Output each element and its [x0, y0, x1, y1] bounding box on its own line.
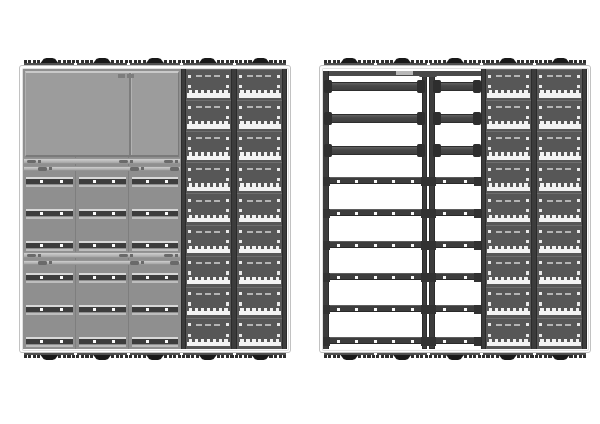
vent-comb-bar	[239, 93, 281, 97]
rail-bottom-edge	[79, 281, 126, 283]
module-screw	[277, 116, 280, 119]
foot-screw-pad	[63, 355, 66, 358]
cross-beam	[326, 146, 423, 155]
vent-comb-bar	[239, 280, 281, 284]
foot-screw-pad	[328, 355, 331, 358]
module-screw	[526, 137, 529, 140]
foot-screw-pad	[521, 60, 524, 63]
vent-comb-bar	[239, 342, 281, 346]
foot-screw-pad	[324, 60, 327, 63]
module-screw	[239, 302, 242, 305]
cabinet-seam-bar	[23, 166, 181, 172]
foot-screw-pad	[217, 60, 220, 63]
module-vent-dash	[247, 200, 253, 202]
module-screw	[539, 75, 542, 78]
foot-center-pad	[393, 58, 411, 64]
beam-coupler	[417, 80, 425, 93]
vent-comb-bar	[539, 342, 581, 346]
rail-coupler	[323, 305, 330, 314]
rail-screw-dot	[146, 180, 149, 183]
foot-screw-pad	[443, 355, 446, 358]
module-vent-dash	[547, 106, 553, 108]
module-screw	[577, 178, 580, 181]
assembly-right	[319, 55, 591, 363]
foot-screw-pad	[429, 60, 432, 63]
perforated-module	[486, 100, 531, 131]
module-vent-dash	[247, 75, 253, 77]
rail-screw-dot	[443, 308, 446, 311]
module-vent-dash	[547, 293, 553, 295]
mounting-rail	[79, 209, 126, 219]
rail-bottom-edge	[79, 185, 126, 187]
seam-clip	[164, 254, 173, 258]
panel-frame	[319, 65, 591, 353]
perforated-module	[186, 193, 231, 224]
seam-clip	[164, 160, 173, 164]
foot-screw-pad	[517, 60, 520, 63]
module-screw	[488, 147, 491, 150]
rail-screw-dot	[374, 244, 377, 247]
perforated-module	[237, 318, 282, 349]
rail-screw-dot	[60, 308, 63, 311]
foot-group-top-5	[536, 55, 586, 65]
foot-screw-pad	[138, 60, 141, 63]
seam-clip	[119, 254, 128, 258]
rail-coupler	[421, 337, 436, 346]
module-screw	[488, 106, 491, 109]
foot-screw-pad	[196, 60, 199, 63]
module-screw	[539, 137, 542, 140]
foot-screw-pad	[129, 355, 132, 358]
module-screw	[577, 137, 580, 140]
rail-screw-dot	[146, 340, 149, 343]
module-screw	[277, 106, 280, 109]
foot-screw-pad	[429, 355, 432, 358]
foot-screw-pad	[134, 60, 137, 63]
module-screw	[539, 292, 542, 295]
module-screw	[188, 240, 191, 243]
foot-screw-pad	[390, 60, 393, 63]
rail-screw-dot	[464, 276, 467, 279]
rail-bottom-edge	[132, 185, 179, 187]
module-screw	[226, 85, 229, 88]
mounting-rail	[132, 241, 179, 251]
module-vent-dash	[265, 262, 271, 264]
module-screw	[539, 261, 542, 264]
foot-screw-pad	[76, 60, 79, 63]
panel-content	[323, 69, 587, 349]
module-screw	[539, 85, 542, 88]
module-screw	[539, 168, 542, 171]
foot-screw-pad	[583, 60, 586, 63]
module-vent-dash	[547, 168, 553, 170]
foot-screw-pad	[478, 60, 481, 63]
foot-group-bottom-5	[236, 353, 286, 363]
foot-screw-pad	[333, 355, 336, 358]
vent-comb-bar	[487, 93, 529, 97]
rail-screw-dot	[93, 180, 96, 183]
seam-clip	[38, 254, 41, 257]
foot-screw-pad	[526, 355, 529, 358]
foot-screw-pad	[37, 60, 40, 63]
module-screw	[239, 168, 242, 171]
foot-screw-pad	[191, 355, 194, 358]
vent-comb-bar	[539, 311, 581, 315]
module-vent-dash	[247, 293, 253, 295]
module-screw	[539, 240, 542, 243]
module-screw	[188, 85, 191, 88]
foot-screw-pad	[333, 60, 336, 63]
module-vent-dash	[205, 293, 211, 295]
module-screw	[577, 75, 580, 78]
foot-screw-pad	[363, 355, 366, 358]
perforated-module	[237, 162, 282, 193]
mounting-rail	[132, 273, 179, 283]
module-vent-dash	[214, 200, 220, 202]
module-screw	[539, 334, 542, 337]
foot-screw-pad	[385, 60, 388, 63]
foot-screw-pad	[239, 355, 242, 358]
module-screw	[488, 292, 491, 295]
module-vent-dash	[496, 75, 502, 77]
module-vent-dash	[247, 324, 253, 326]
foot-screw-pad	[517, 355, 520, 358]
module-screw	[488, 230, 491, 233]
module-screw	[226, 178, 229, 181]
foot-screw-pad	[469, 355, 472, 358]
foot-screw-pad	[269, 60, 272, 63]
foot-screw-pad	[230, 355, 233, 358]
module-screw	[526, 240, 529, 243]
module-vent-dash	[214, 75, 220, 77]
foot-center-pad	[552, 355, 570, 361]
module-screw	[577, 292, 580, 295]
vent-comb-bar	[487, 156, 529, 160]
module-vent-dash	[547, 262, 553, 264]
module-vent-dash	[214, 137, 220, 139]
foot-screw-pad	[434, 60, 437, 63]
module-vent-dash	[547, 137, 553, 139]
module-screw	[277, 230, 280, 233]
seam-clip	[170, 167, 179, 171]
seam-clip	[130, 254, 133, 257]
perforated-module	[486, 256, 531, 287]
module-vent-dash	[565, 168, 571, 170]
cabinet-seam-bar	[23, 252, 181, 258]
foot-screw-pad	[358, 60, 361, 63]
mounting-rail	[132, 209, 179, 219]
module-screw	[539, 178, 542, 181]
perforated-module	[186, 256, 231, 287]
module-screw	[188, 147, 191, 150]
module-vent-dash	[565, 137, 571, 139]
foot-screw-pad	[358, 355, 361, 358]
foot-screw-pad	[178, 60, 181, 63]
module-vent-dash	[265, 231, 271, 233]
foot-center-pad	[499, 355, 517, 361]
perforated-module	[486, 225, 531, 256]
foot-screw-pad	[274, 60, 277, 63]
module-vent-dash	[205, 324, 211, 326]
rail-screw-dot	[337, 180, 340, 183]
rail-screw-dot	[165, 212, 168, 215]
module-screw	[577, 147, 580, 150]
module-vent-dash	[196, 200, 202, 202]
module-screw	[277, 302, 280, 305]
rail-screw-dot	[112, 180, 115, 183]
module-screw	[277, 178, 280, 181]
foot-screw-pad	[67, 60, 70, 63]
rail-coupler	[323, 209, 330, 218]
seam-clip	[49, 261, 52, 264]
module-vent-dash	[196, 293, 202, 295]
module-vent-dash	[556, 168, 562, 170]
module-vent-dash	[565, 75, 571, 77]
foot-group-bottom-1	[24, 353, 74, 363]
foot-screw-pad	[116, 60, 119, 63]
foot-screw-pad	[469, 60, 472, 63]
module-vent-dash	[265, 106, 271, 108]
module-screw	[526, 292, 529, 295]
perforated-module	[486, 131, 531, 162]
rail-bottom-edge	[79, 313, 126, 315]
foot-screw-pad	[337, 60, 340, 63]
module-screw	[526, 147, 529, 150]
module-vent-dash	[247, 231, 253, 233]
seam-clip	[38, 261, 47, 265]
foot-screw-pad	[569, 60, 572, 63]
rail-screw-dot	[355, 180, 358, 183]
mounting-rail	[132, 177, 179, 187]
perforated-module	[186, 162, 231, 193]
rail-screw-dot	[464, 244, 467, 247]
foot-screw-pad	[72, 60, 75, 63]
foot-screw-pad	[85, 355, 88, 358]
module-screw	[577, 106, 580, 109]
module-vent-dash	[256, 262, 262, 264]
module-screw	[539, 106, 542, 109]
rail-screw-dot	[40, 212, 43, 215]
rail-screw-dot	[464, 308, 467, 311]
foot-group-bottom-1	[324, 353, 374, 363]
beam-coupler	[417, 144, 425, 157]
foot-screw-pad	[90, 355, 93, 358]
foot-group-bottom-2	[77, 353, 127, 363]
perforated-module	[537, 193, 582, 224]
mounting-rail	[79, 177, 126, 187]
foot-center-pad	[146, 58, 164, 64]
perforated-module	[537, 131, 582, 162]
seam-clip	[38, 167, 47, 171]
cabinet-seam-bar	[23, 260, 181, 266]
module-screw	[526, 85, 529, 88]
perforated-module	[537, 162, 582, 193]
module-screw	[577, 334, 580, 337]
foot-screw-pad	[438, 60, 441, 63]
rail-screw-dot	[93, 308, 96, 311]
foot-group-bottom-2	[377, 353, 427, 363]
foot-screw-pad	[425, 355, 428, 358]
foot-screw-pad	[535, 60, 538, 63]
module-screw	[277, 85, 280, 88]
module-vent-dash	[256, 168, 262, 170]
foot-group-bottom-4	[483, 353, 533, 363]
vent-comb-bar	[539, 93, 581, 97]
foot-group-top-4	[183, 55, 233, 65]
module-screw	[539, 302, 542, 305]
foot-screw-pad	[486, 60, 489, 63]
foot-screw-pad	[120, 355, 123, 358]
module-screw	[488, 199, 491, 202]
foot-group-top-5	[236, 55, 286, 65]
foot-screw-pad	[411, 60, 414, 63]
module-screw	[226, 116, 229, 119]
module-vent-dash	[496, 324, 502, 326]
module-screw	[239, 106, 242, 109]
beam-coupler	[473, 144, 481, 157]
mounting-rail	[26, 305, 73, 315]
rail-screw-dot	[443, 244, 446, 247]
module-vent-dash	[514, 262, 520, 264]
vent-comb-bar	[539, 187, 581, 191]
foot-screw-pad	[67, 355, 70, 358]
foot-screw-pad	[226, 60, 229, 63]
mounting-rail	[26, 273, 73, 283]
module-vent-dash	[565, 293, 571, 295]
seam-clip	[38, 160, 41, 163]
mounting-rail	[79, 337, 126, 347]
module-screw	[539, 209, 542, 212]
module-vent-dash	[196, 231, 202, 233]
rail-coupler	[421, 241, 436, 250]
module-screw	[188, 116, 191, 119]
foot-group-bottom-3	[130, 353, 180, 363]
module-vent-dash	[265, 200, 271, 202]
foot-screw-pad	[376, 60, 379, 63]
module-screw	[226, 168, 229, 171]
module-vent-dash	[256, 106, 262, 108]
foot-center-pad	[252, 58, 270, 64]
rail-coupler	[474, 305, 481, 314]
module-screw	[226, 147, 229, 150]
mounting-rail	[26, 241, 73, 251]
module-screw	[226, 334, 229, 337]
rail-coupler	[421, 209, 436, 218]
rail-screw-dot	[40, 276, 43, 279]
foot-screw-pad	[526, 60, 529, 63]
foot-screw-pad	[425, 60, 428, 63]
module-vent-dash	[565, 231, 571, 233]
foot-screw-pad	[381, 355, 384, 358]
foot-screw-pad	[438, 355, 441, 358]
vent-comb-bar	[487, 218, 529, 222]
foot-screw-pad	[182, 355, 185, 358]
foot-screw-pad	[226, 355, 229, 358]
foot-screw-pad	[530, 60, 533, 63]
assembly-left	[19, 55, 291, 363]
vent-comb-bar	[487, 280, 529, 284]
vent-comb-bar	[487, 311, 529, 315]
rail-screw-dot	[337, 212, 340, 215]
module-screw	[188, 323, 191, 326]
foot-center-pad	[199, 58, 217, 64]
foot-screw-pad	[120, 60, 123, 63]
module-vent-dash	[196, 137, 202, 139]
module-vent-dash	[565, 262, 571, 264]
seam-clip	[119, 160, 128, 164]
foot-screw-pad	[574, 60, 577, 63]
rail-screw-dot	[112, 244, 115, 247]
foot-screw-pad	[420, 60, 423, 63]
rail-screw-dot	[374, 212, 377, 215]
cabinet-seam-bar	[23, 158, 181, 164]
foot-center-pad	[40, 355, 58, 361]
rail-screw-dot	[464, 212, 467, 215]
rail-bottom-edge	[79, 249, 126, 251]
rail-screw-dot	[60, 340, 63, 343]
module-screw	[188, 334, 191, 337]
beam-coupler	[473, 80, 481, 93]
foot-screw-pad	[178, 355, 181, 358]
mounting-rail	[26, 209, 73, 219]
module-screw	[577, 199, 580, 202]
rail-screw-dot	[93, 244, 96, 247]
module-screw	[188, 137, 191, 140]
foot-screw-pad	[548, 355, 551, 358]
rail-screw-dot	[337, 276, 340, 279]
module-screw	[277, 240, 280, 243]
foot-screw-pad	[28, 60, 31, 63]
module-vent-dash	[556, 137, 562, 139]
perforated-module	[186, 318, 231, 349]
rail-screw-dot	[411, 340, 414, 343]
module-screw	[526, 302, 529, 305]
foot-screw-pad	[385, 355, 388, 358]
module-screw	[488, 323, 491, 326]
module-vent-dash	[265, 75, 271, 77]
perforated-module	[237, 69, 282, 100]
perforated-module	[537, 287, 582, 318]
foot-screw-pad	[244, 355, 247, 358]
module-vent-dash	[556, 293, 562, 295]
rail-screw-dot	[146, 244, 149, 247]
module-screw	[488, 85, 491, 88]
foot-screw-pad	[85, 60, 88, 63]
rail-screw-dot	[374, 308, 377, 311]
mounting-rail	[323, 241, 481, 248]
foot-screw-pad	[76, 355, 79, 358]
module-screw	[226, 271, 229, 274]
foot-screw-pad	[363, 60, 366, 63]
module-screw	[188, 230, 191, 233]
rail-bottom-edge	[26, 345, 73, 347]
module-screw	[226, 323, 229, 326]
rail-bottom-edge	[79, 345, 126, 347]
module-screw	[526, 323, 529, 326]
module-vent-dash	[556, 231, 562, 233]
perforated-post	[582, 69, 587, 349]
module-vent-dash	[514, 231, 520, 233]
foot-screw-pad	[443, 60, 446, 63]
foot-screw-pad	[164, 355, 167, 358]
module-vent-dash	[205, 200, 211, 202]
mounting-rail	[79, 273, 126, 283]
module-screw	[226, 240, 229, 243]
module-screw	[539, 230, 542, 233]
rail-screw-dot	[146, 308, 149, 311]
foot-screw-pad	[390, 355, 393, 358]
module-screw	[239, 199, 242, 202]
